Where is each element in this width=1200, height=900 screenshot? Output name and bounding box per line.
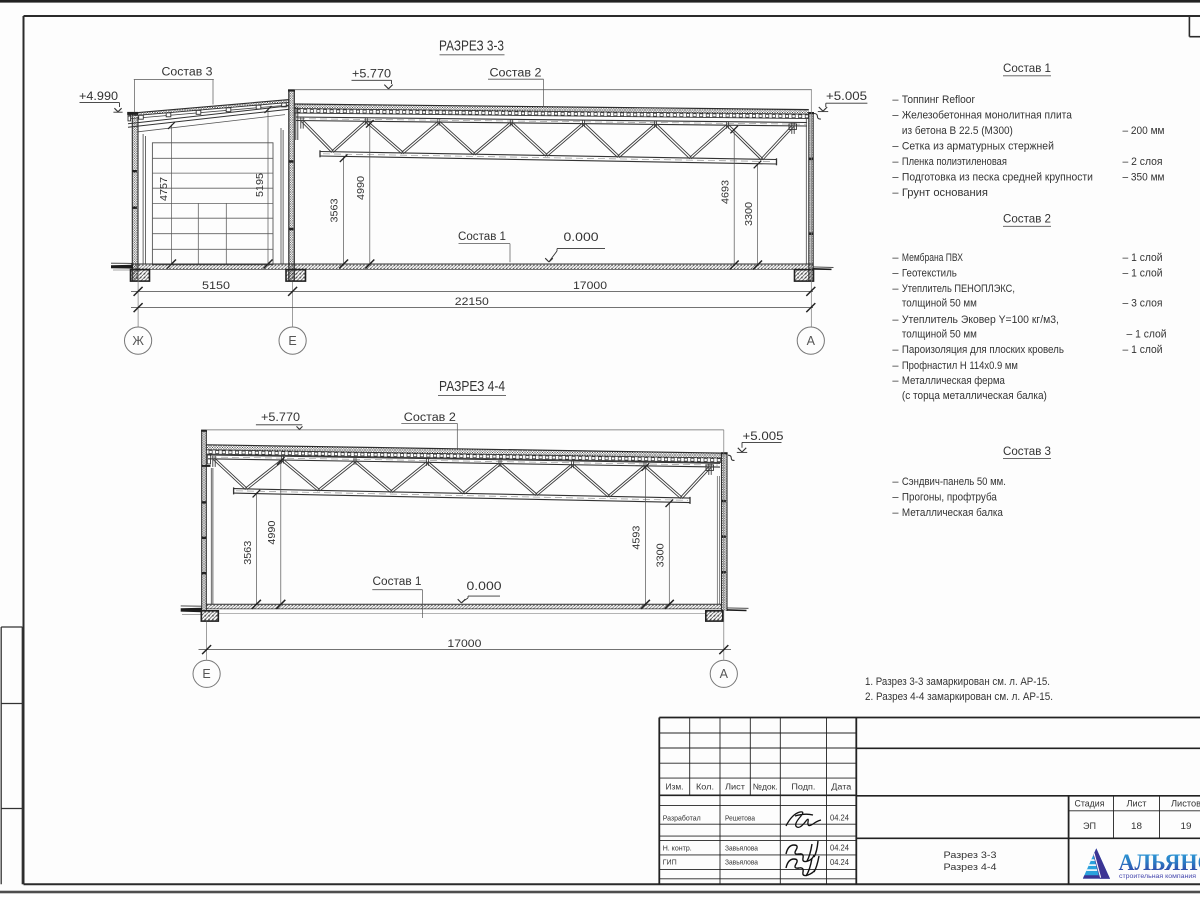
svg-text:Состав 2: Состав 2 — [490, 68, 542, 80]
svg-text:А: А — [720, 667, 729, 681]
svg-text:04.24: 04.24 — [830, 858, 850, 867]
svg-text:Железобетонная монолитная пли: Железобетонная монолитная плита — [902, 109, 1073, 121]
svg-text:–: – — [892, 94, 899, 106]
svg-text:0.000: 0.000 — [564, 232, 599, 244]
svg-text:–: – — [892, 267, 899, 279]
svg-text:–: – — [892, 360, 899, 372]
svg-text:Состав 1: Состав 1 — [373, 576, 422, 588]
svg-text:–: – — [892, 109, 899, 121]
svg-text:– 350 мм: – 350 мм — [1123, 171, 1165, 183]
svg-text:4990: 4990 — [267, 520, 278, 545]
svg-text:Кол.: Кол. — [696, 781, 714, 791]
svg-text:Решетова: Решетова — [725, 813, 756, 822]
svg-text:–: – — [892, 491, 899, 503]
svg-text:Состав 2: Состав 2 — [404, 412, 456, 424]
svg-text:Лист: Лист — [725, 781, 745, 791]
svg-text:Завьялова: Завьялова — [725, 843, 759, 852]
svg-text:Сетка из арматурных стержней: Сетка из арматурных стержней — [902, 140, 1054, 152]
svg-text:Состав 1: Состав 1 — [1003, 61, 1051, 75]
svg-text:–: – — [892, 375, 899, 387]
svg-text:–: – — [892, 283, 899, 295]
svg-text:Утеплитель ПЕНОПЛЭКС,: Утеплитель ПЕНОПЛЭКС, — [902, 283, 1015, 295]
svg-text:+4.990: +4.990 — [79, 91, 118, 103]
svg-text:Геотекстиль: Геотекстиль — [902, 267, 957, 279]
svg-text:Состав 2: Состав 2 — [1003, 212, 1051, 226]
svg-text:– 1 слой: – 1 слой — [1127, 328, 1167, 340]
svg-text:–: – — [892, 171, 899, 183]
svg-text:Сэндвич-панель 50 мм.: Сэндвич-панель 50 мм. — [902, 476, 1006, 488]
svg-text:4757: 4757 — [159, 177, 170, 201]
svg-text:Е: Е — [202, 667, 210, 681]
svg-text:22150: 22150 — [455, 296, 489, 308]
svg-text:–: – — [892, 252, 899, 264]
svg-text:Стадия: Стадия — [1075, 799, 1105, 809]
svg-text:Состав 3: Состав 3 — [1003, 444, 1051, 458]
svg-text:–: – — [892, 187, 899, 199]
svg-text:Профнастил Н 114х0.9 мм: Профнастил Н 114х0.9 мм — [902, 360, 1018, 372]
svg-text:5150: 5150 — [202, 280, 230, 292]
svg-text:Е: Е — [288, 334, 296, 348]
svg-text:из бетона В 22.5 (М300): из бетона В 22.5 (М300) — [902, 125, 1013, 137]
svg-text:– 200 мм: – 200 мм — [1123, 125, 1165, 137]
svg-text:Металлическая балка: Металлическая балка — [902, 507, 1004, 519]
svg-text:Листов: Листов — [1171, 799, 1200, 809]
svg-text:Прогоны, профтруба: Прогоны, профтруба — [902, 491, 998, 503]
svg-text:– 2 слоя: – 2 слоя — [1123, 156, 1163, 168]
svg-text:5195: 5195 — [255, 172, 266, 197]
svg-text:Пленка полиэтиленовая: Пленка полиэтиленовая — [902, 156, 1007, 168]
svg-text:Пароизоляция для плоских крове: Пароизоляция для плоских кровель — [902, 344, 1064, 356]
svg-text:Состав 1: Состав 1 — [458, 231, 506, 243]
svg-text:Металлическая ферма: Металлическая ферма — [902, 375, 1006, 387]
svg-text:+5.770: +5.770 — [352, 68, 391, 80]
svg-text:РАЗРЕЗ 4-4: РАЗРЕЗ 4-4 — [439, 379, 505, 395]
svg-text:толщиной 50 мм: толщиной 50 мм — [902, 328, 977, 340]
svg-text:04.24: 04.24 — [830, 844, 850, 853]
svg-text:Ж: Ж — [132, 334, 144, 348]
svg-text:17000: 17000 — [573, 280, 607, 292]
svg-text:(с торца металлическая балка): (с торца металлическая балка) — [902, 390, 1047, 402]
svg-text:Лист: Лист — [1127, 799, 1147, 809]
svg-text:Топпинг Refloor: Топпинг Refloor — [902, 94, 975, 106]
svg-text:–: – — [892, 476, 899, 488]
svg-text:– 1 слой: – 1 слой — [1123, 267, 1163, 279]
svg-text:Дата: Дата — [831, 781, 851, 791]
svg-text:3563: 3563 — [330, 198, 341, 223]
svg-text:4990: 4990 — [356, 175, 367, 200]
svg-text:3300: 3300 — [744, 201, 755, 226]
svg-text:–: – — [892, 156, 899, 168]
svg-text:3563: 3563 — [243, 540, 254, 565]
svg-text:ГИП: ГИП — [663, 858, 677, 867]
svg-text:Изм.: Изм. — [666, 781, 684, 791]
svg-text:4593: 4593 — [632, 525, 643, 550]
svg-text:– 1 слой: – 1 слой — [1123, 252, 1163, 264]
svg-text:А: А — [807, 334, 816, 348]
svg-text:+5.005: +5.005 — [743, 431, 784, 443]
svg-text:–: – — [892, 344, 899, 356]
svg-text:строительная компания: строительная компания — [1119, 873, 1196, 880]
svg-text:04.24: 04.24 — [830, 814, 850, 823]
svg-text:Грунт основания: Грунт основания — [902, 187, 988, 199]
svg-text:Утеплитель Эковер Y=100 кг/м3,: Утеплитель Эковер Y=100 кг/м3, — [902, 314, 1059, 326]
svg-text:4693: 4693 — [721, 179, 732, 204]
svg-text:3300: 3300 — [656, 543, 667, 568]
svg-text:ЭП: ЭП — [1083, 821, 1096, 832]
svg-text:Состав 3: Состав 3 — [162, 66, 213, 78]
svg-text:Подготовка из песка средней кр: Подготовка из песка средней крупности — [902, 171, 1093, 183]
svg-text:+5.005: +5.005 — [826, 91, 867, 103]
svg-text:№док.: №док. — [753, 781, 778, 791]
svg-text:1. Разрез 3-3 замаркирован см.: 1. Разрез 3-3 замаркирован см. л. АР-15. — [865, 676, 1050, 688]
svg-text:2. Разрез 4-4 замаркирован см.: 2. Разрез 4-4 замаркирован см. л. АР-15. — [865, 691, 1053, 703]
svg-text:Разработал: Разработал — [663, 813, 701, 822]
svg-text:Разрез 4-4: Разрез 4-4 — [944, 862, 997, 873]
svg-text:–: – — [892, 507, 899, 519]
svg-text:0.000: 0.000 — [467, 581, 502, 593]
svg-text:Н. контр.: Н. контр. — [663, 843, 692, 852]
svg-text:–: – — [892, 140, 899, 152]
svg-text:Подп.: Подп. — [791, 781, 815, 791]
svg-text:–: – — [892, 314, 899, 326]
svg-text:– 3 слоя: – 3 слоя — [1123, 298, 1163, 310]
svg-text:толщиной 50 мм: толщиной 50 мм — [902, 298, 977, 310]
svg-text:РАЗРЕЗ 3-3: РАЗРЕЗ 3-3 — [439, 39, 504, 55]
svg-text:18: 18 — [1131, 821, 1142, 832]
svg-text:Мембрана ПВХ: Мембрана ПВХ — [902, 252, 964, 264]
svg-text:19: 19 — [1181, 821, 1192, 832]
svg-text:– 1 слой: – 1 слой — [1123, 344, 1163, 356]
svg-text:Разрез 3-3: Разрез 3-3 — [944, 850, 997, 861]
svg-text:17000: 17000 — [447, 638, 481, 650]
svg-text:+5.770: +5.770 — [261, 412, 300, 424]
svg-text:Завьялова: Завьялова — [725, 858, 759, 867]
